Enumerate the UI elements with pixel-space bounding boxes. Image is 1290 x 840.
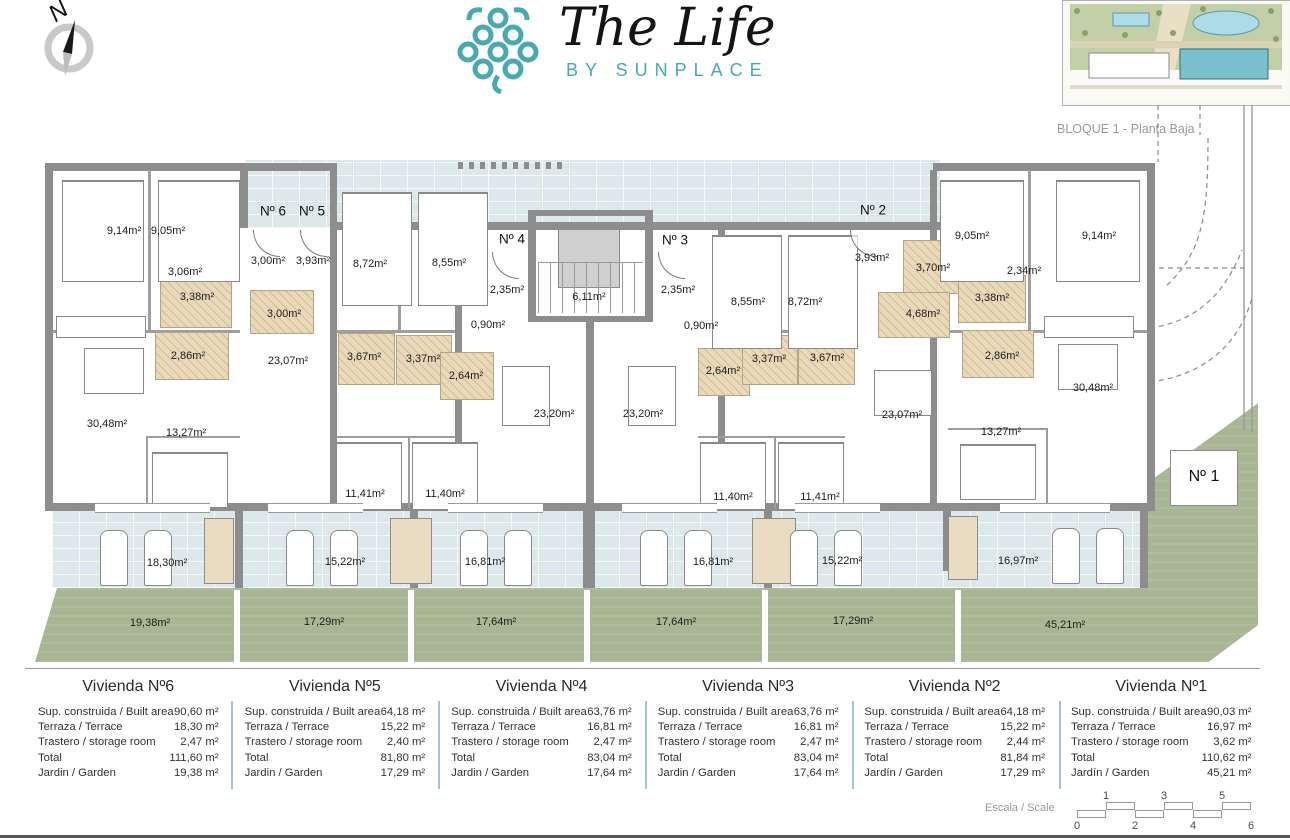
driveway-area bbox=[1148, 100, 1290, 435]
unit-table-5: Vivienda Nº5Sup. construida / Built area… bbox=[232, 676, 439, 792]
unit-spec-row: Trastero / storage room2,40 m² bbox=[245, 735, 426, 750]
unit-spec-row: Trastero / storage room3,62 m² bbox=[1071, 735, 1252, 750]
wall bbox=[45, 163, 53, 511]
unit-spec-row: Total81,84 m² bbox=[864, 751, 1045, 766]
door-swing bbox=[253, 230, 280, 257]
table-divider bbox=[438, 701, 440, 789]
room-area-label: 0,90m² bbox=[471, 319, 505, 331]
spec-label: Sup. construida / Built area bbox=[1071, 705, 1207, 720]
spec-label: Total bbox=[245, 751, 269, 766]
unit-title: Vivienda Nº1 bbox=[1071, 678, 1252, 696]
spec-label: Trastero / storage room bbox=[864, 735, 982, 750]
fence-post bbox=[524, 162, 529, 169]
unit-spec-row: Sup. construida / Built area64,18 m² bbox=[245, 705, 426, 720]
garden-divider bbox=[234, 590, 240, 662]
furniture-kitchen-island bbox=[56, 316, 146, 338]
spec-value: 15,22 m² bbox=[381, 720, 426, 735]
storage-room bbox=[948, 516, 978, 580]
entrance-label: Nº 1 bbox=[1189, 468, 1220, 486]
scale-segment bbox=[1106, 802, 1135, 810]
spec-label: Sup. construida / Built area bbox=[658, 705, 794, 720]
door-swing bbox=[658, 252, 685, 279]
room-area-label: 9,14m² bbox=[107, 225, 141, 237]
wall bbox=[933, 163, 1155, 171]
unit-table-4: Vivienda Nº4Sup. construida / Built area… bbox=[438, 676, 645, 792]
partition-wall bbox=[148, 170, 151, 330]
fence-post bbox=[458, 162, 463, 169]
unit-spec-row: Sup. construida / Built area63,76 m² bbox=[658, 705, 839, 720]
table-divider bbox=[852, 701, 854, 789]
room-area-label: 2,86m² bbox=[171, 350, 205, 362]
spec-label: Sup. construida / Built area bbox=[38, 705, 174, 720]
room-area-label: 9,14m² bbox=[1082, 230, 1116, 242]
spec-value: 90,03 m² bbox=[1207, 705, 1252, 720]
room-area-label: 16,97m² bbox=[998, 555, 1038, 567]
spec-value: 18,30 m² bbox=[174, 720, 219, 735]
spec-label: Sup. construida / Built area bbox=[864, 705, 1000, 720]
room-area-label: 17,64m² bbox=[476, 616, 516, 628]
room-area-label: 0,90m² bbox=[684, 320, 718, 332]
room-area-label: 30,48m² bbox=[87, 418, 127, 430]
staircase bbox=[538, 262, 643, 313]
spec-label: Trastero / storage room bbox=[451, 735, 569, 750]
door-swing bbox=[300, 230, 327, 257]
room-area-label: 9,05m² bbox=[955, 230, 989, 242]
scale-tick: 2 bbox=[1132, 820, 1138, 832]
furniture-bed bbox=[342, 192, 412, 306]
garden-right bbox=[1148, 398, 1258, 662]
entrance-label: Nº 6 bbox=[260, 204, 286, 219]
room-area-label: 3,67m² bbox=[347, 351, 381, 363]
storage-room bbox=[390, 518, 432, 584]
furniture-kitchen-island bbox=[1044, 316, 1134, 338]
page-bottom-rule bbox=[0, 835, 1290, 838]
wall bbox=[1147, 163, 1155, 511]
spec-value: 17,64 m² bbox=[587, 766, 632, 781]
spec-label: Sup. construida / Built area bbox=[245, 705, 381, 720]
entrance-label: Nº 4 bbox=[499, 232, 525, 247]
unit-table-6: Vivienda Nº6Sup. construida / Built area… bbox=[25, 676, 232, 792]
unit-title: Vivienda Nº3 bbox=[658, 678, 839, 696]
spec-label: Trastero / storage room bbox=[245, 735, 363, 750]
spec-value: 90,60 m² bbox=[174, 705, 219, 720]
table-divider bbox=[1059, 701, 1061, 789]
scale-bar: Escala / Scale 1350246 bbox=[985, 790, 1275, 832]
spec-value: 16,97 m² bbox=[1207, 720, 1252, 735]
room-area-label: 8,55m² bbox=[731, 296, 765, 308]
room-area-label: 8,55m² bbox=[432, 257, 466, 269]
spec-label: Jardin / Garden bbox=[658, 766, 736, 781]
wall bbox=[240, 163, 248, 228]
spec-label: Total bbox=[658, 751, 682, 766]
fence-post bbox=[546, 162, 551, 169]
unit-spec-row: Sup. construida / Built area63,76 m² bbox=[451, 705, 632, 720]
garden-divider bbox=[955, 590, 961, 662]
scale-tick: 4 bbox=[1190, 820, 1196, 832]
room-area-label: 18,30m² bbox=[147, 557, 187, 569]
spec-value: 17,64 m² bbox=[794, 766, 839, 781]
room-area-label: 23,07m² bbox=[268, 355, 308, 367]
furniture-bed bbox=[712, 235, 782, 349]
room-area-label: 11,40m² bbox=[713, 491, 753, 503]
room-area-label: 23,20m² bbox=[623, 408, 663, 420]
room-area-label: 16,81m² bbox=[693, 556, 733, 568]
spec-value: 16,81 m² bbox=[794, 720, 839, 735]
storage-room bbox=[204, 518, 234, 584]
unit-spec-row: Trastero / storage room2,47 m² bbox=[38, 735, 219, 750]
spec-label: Jardin / Garden bbox=[451, 766, 529, 781]
room-area-label: 15,22m² bbox=[822, 555, 862, 567]
furniture-bed bbox=[960, 444, 1036, 500]
spec-label: Total bbox=[38, 751, 62, 766]
room-area-label: 3,37m² bbox=[406, 353, 440, 365]
spec-label: Jardin / Garden bbox=[245, 766, 323, 781]
furniture-sun-lounger bbox=[1052, 528, 1080, 584]
spec-label: Terraza / Terrace bbox=[864, 720, 949, 735]
room-area-label: 16,81m² bbox=[465, 556, 505, 568]
unit-spec-row: Trastero / storage room2,44 m² bbox=[864, 735, 1045, 750]
unit-spec-row: Jardín / Garden17,29 m² bbox=[864, 766, 1045, 781]
wall bbox=[45, 163, 337, 171]
spec-label: Terraza / Terrace bbox=[38, 720, 123, 735]
fence-post bbox=[480, 162, 485, 169]
wall bbox=[235, 511, 243, 588]
unit-spec-row: Terraza / Terrace16,97 m² bbox=[1071, 720, 1252, 735]
room-area-label: 13,27m² bbox=[166, 427, 206, 439]
furniture-bed bbox=[788, 235, 858, 349]
unit-table-2: Vivienda Nº2Sup. construida / Built area… bbox=[851, 676, 1058, 792]
bathroom-area bbox=[160, 278, 232, 328]
room-area-label: 2,34m² bbox=[1007, 265, 1041, 277]
spec-value: 17,29 m² bbox=[381, 766, 426, 781]
garden-strip bbox=[35, 588, 1148, 662]
spec-value: 64,18 m² bbox=[1000, 705, 1045, 720]
wall bbox=[645, 210, 653, 322]
spec-label: Terraza / Terrace bbox=[658, 720, 743, 735]
room-area-label: 9,05m² bbox=[151, 225, 185, 237]
unit-spec-row: Sup. construida / Built area64,18 m² bbox=[864, 705, 1045, 720]
unit-spec-row: Terraza / Terrace15,22 m² bbox=[245, 720, 426, 735]
room-area-label: 3,37m² bbox=[752, 353, 786, 365]
window-opening bbox=[268, 503, 363, 513]
unit-spec-row: Jardin / Garden19,38 m² bbox=[38, 766, 219, 781]
unit-spec-row: Terraza / Terrace18,30 m² bbox=[38, 720, 219, 735]
room-area-label: 11,41m² bbox=[345, 488, 385, 500]
room-area-label: 15,22m² bbox=[325, 556, 365, 568]
room-area-label: 3,00m² bbox=[267, 308, 301, 320]
partition-wall bbox=[146, 436, 148, 510]
partition-wall bbox=[408, 436, 410, 508]
scale-segment bbox=[1135, 810, 1164, 818]
room-area-label: 30,48m² bbox=[1073, 382, 1113, 394]
partition-wall bbox=[774, 436, 776, 508]
unit-spec-row: Jardín / Garden45,21 m² bbox=[1071, 766, 1252, 781]
scale-segment bbox=[1193, 810, 1222, 818]
room-area-label: 2,35m² bbox=[490, 284, 524, 296]
room-area-label: 45,21m² bbox=[1045, 619, 1085, 631]
room-area-label: 3,06m² bbox=[168, 266, 202, 278]
spec-value: 16,81 m² bbox=[587, 720, 632, 735]
spec-label: Terraza / Terrace bbox=[245, 720, 330, 735]
wall bbox=[1140, 511, 1148, 588]
scale-tick: 0 bbox=[1074, 820, 1080, 832]
scale-tick: 6 bbox=[1248, 820, 1254, 832]
room-area-label: 23,07m² bbox=[882, 409, 922, 421]
unit-spec-row: Trastero / storage room2,47 m² bbox=[451, 735, 632, 750]
unit-spec-row: Total81,80 m² bbox=[245, 751, 426, 766]
room-area-label: 3,00m² bbox=[251, 255, 285, 267]
spec-label: Terraza / Terrace bbox=[1071, 720, 1156, 735]
spec-value: 19,38 m² bbox=[174, 766, 219, 781]
unit-spec-row: Sup. construida / Built area90,60 m² bbox=[38, 705, 219, 720]
unit-spec-row: Jardin / Garden17,29 m² bbox=[245, 766, 426, 781]
unit-spec-row: Jardin / Garden17,64 m² bbox=[451, 766, 632, 781]
unit-table-3: Vivienda Nº3Sup. construida / Built area… bbox=[645, 676, 852, 792]
partition-wall bbox=[1028, 170, 1031, 330]
spec-label: Jardín / Garden bbox=[864, 766, 943, 781]
spec-value: 63,76 m² bbox=[587, 705, 632, 720]
room-area-label: 2,64m² bbox=[706, 365, 740, 377]
fence-post bbox=[469, 162, 474, 169]
room-area-label: 2,64m² bbox=[449, 370, 483, 382]
furniture-bed bbox=[418, 192, 488, 306]
unit-title: Vivienda Nº4 bbox=[451, 678, 632, 696]
room-area-label: 2,86m² bbox=[985, 350, 1019, 362]
partition-wall bbox=[337, 436, 455, 438]
window-opening bbox=[795, 503, 880, 513]
scale-tick: 5 bbox=[1219, 790, 1225, 802]
furniture-sun-lounger bbox=[790, 530, 818, 586]
unit-spec-row: Trastero / storage room2,47 m² bbox=[658, 735, 839, 750]
spec-label: Terraza / Terrace bbox=[451, 720, 536, 735]
fence-post bbox=[491, 162, 496, 169]
entrance-label: Nº 5 bbox=[299, 204, 325, 219]
entrance-label: Nº 3 bbox=[662, 233, 688, 248]
room-area-label: 8,72m² bbox=[353, 258, 387, 270]
furniture-bed bbox=[152, 452, 228, 508]
scale-tick: 3 bbox=[1161, 790, 1167, 802]
partition-wall bbox=[698, 436, 845, 438]
garden-divider bbox=[762, 590, 768, 662]
spec-label: Total bbox=[1071, 751, 1095, 766]
spec-label: Trastero / storage room bbox=[38, 735, 156, 750]
furniture-sun-lounger bbox=[286, 530, 314, 586]
spec-value: 81,80 m² bbox=[381, 751, 426, 766]
room-area-label: 11,41m² bbox=[800, 491, 840, 503]
spec-value: 2,44 m² bbox=[1007, 735, 1045, 750]
partition-wall bbox=[1046, 428, 1048, 508]
wall bbox=[586, 322, 594, 503]
scale-segment bbox=[1164, 802, 1193, 810]
furniture-dining-table bbox=[84, 348, 144, 394]
spec-value: 3,62 m² bbox=[1213, 735, 1251, 750]
table-divider bbox=[645, 701, 647, 789]
scale-label: Escala / Scale bbox=[985, 802, 1055, 814]
window-opening bbox=[448, 503, 543, 513]
spec-value: 2,47 m² bbox=[593, 735, 631, 750]
room-area-label: 8,72m² bbox=[788, 296, 822, 308]
fence-post bbox=[502, 162, 507, 169]
spec-value: 15,22 m² bbox=[1000, 720, 1045, 735]
unit-spec-row: Total110,62 m² bbox=[1071, 751, 1252, 766]
spec-value: 64,18 m² bbox=[381, 705, 426, 720]
room-area-label: 2,35m² bbox=[661, 284, 695, 296]
room-area-label: 19,38m² bbox=[130, 617, 170, 629]
wall bbox=[528, 210, 653, 216]
spec-label: Total bbox=[864, 751, 888, 766]
window-opening bbox=[1000, 503, 1110, 513]
unit-spec-row: Terraza / Terrace16,81 m² bbox=[451, 720, 632, 735]
room-area-label: 3,67m² bbox=[810, 352, 844, 364]
spec-label: Jardín / Garden bbox=[1071, 766, 1150, 781]
room-area-label: 17,29m² bbox=[833, 615, 873, 627]
garden-divider bbox=[408, 590, 414, 662]
spec-value: 63,76 m² bbox=[794, 705, 839, 720]
window-opening bbox=[622, 503, 717, 513]
furniture-sun-lounger bbox=[1096, 528, 1124, 584]
spec-value: 45,21 m² bbox=[1207, 766, 1252, 781]
door-swing bbox=[492, 252, 519, 279]
fence-post bbox=[557, 162, 562, 169]
furniture-sun-lounger bbox=[100, 530, 128, 586]
unit-table-1: Vivienda Nº1Sup. construida / Built area… bbox=[1058, 676, 1265, 792]
spec-value: 2,40 m² bbox=[387, 735, 425, 750]
spec-value: 17,29 m² bbox=[1000, 766, 1045, 781]
unit-spec-row: Terraza / Terrace16,81 m² bbox=[658, 720, 839, 735]
room-area-label: 3,38m² bbox=[975, 292, 1009, 304]
spec-label: Total bbox=[451, 751, 475, 766]
unit-spec-row: Total111,60 m² bbox=[38, 751, 219, 766]
furniture-sun-lounger bbox=[640, 530, 668, 586]
spec-label: Trastero / storage room bbox=[658, 735, 776, 750]
garden-divider bbox=[584, 590, 590, 662]
spec-label: Jardin / Garden bbox=[38, 766, 116, 781]
wall bbox=[528, 210, 536, 322]
room-area-label: 3,38m² bbox=[180, 291, 214, 303]
unit-spec-row: Terraza / Terrace15,22 m² bbox=[864, 720, 1045, 735]
room-area-label: 13,27m² bbox=[981, 426, 1021, 438]
scale-segment bbox=[1222, 802, 1251, 810]
scale-tick: 1 bbox=[1103, 790, 1109, 802]
spec-value: 2,47 m² bbox=[800, 735, 838, 750]
room-area-label: 23,20m² bbox=[534, 408, 574, 420]
table-divider bbox=[231, 701, 233, 789]
entrance-label: Nº 2 bbox=[860, 203, 886, 218]
unit-title: Vivienda Nº2 bbox=[864, 678, 1045, 696]
wall bbox=[583, 511, 595, 588]
spec-value: 2,47 m² bbox=[180, 735, 218, 750]
room-area-label: 3,93m² bbox=[855, 252, 889, 264]
spec-label: Sup. construida / Built area bbox=[451, 705, 587, 720]
room-area-label: 6,11m² bbox=[572, 291, 605, 303]
unit-title: Vivienda Nº5 bbox=[245, 678, 426, 696]
wall bbox=[528, 316, 653, 322]
unit-spec-row: Jardin / Garden17,64 m² bbox=[658, 766, 839, 781]
spec-value: 83,04 m² bbox=[794, 751, 839, 766]
furniture-sun-lounger bbox=[504, 530, 532, 586]
room-area-label: 17,64m² bbox=[656, 616, 696, 628]
room-area-label: 3,93m² bbox=[296, 255, 330, 267]
unit-spec-row: Sup. construida / Built area90,03 m² bbox=[1071, 705, 1252, 720]
spec-value: 110,62 m² bbox=[1202, 751, 1252, 766]
unit-spec-row: Total83,04 m² bbox=[658, 751, 839, 766]
room-area-label: 4,68m² bbox=[906, 308, 940, 320]
fence-post bbox=[535, 162, 540, 169]
plan-frame-line bbox=[25, 668, 1260, 669]
scale-segment bbox=[1077, 810, 1106, 818]
spec-label: Trastero / storage room bbox=[1071, 735, 1189, 750]
room-area-label: 17,29m² bbox=[304, 616, 344, 628]
window-opening bbox=[95, 503, 210, 513]
spec-value: 81,84 m² bbox=[1000, 751, 1045, 766]
unit-title: Vivienda Nº6 bbox=[38, 678, 219, 696]
spec-value: 111,60 m² bbox=[169, 751, 218, 766]
spec-value: 83,04 m² bbox=[587, 751, 632, 766]
room-area-label: 3,70m² bbox=[916, 262, 950, 274]
room-area-label: 11,40m² bbox=[425, 488, 465, 500]
unit-spec-row: Total83,04 m² bbox=[451, 751, 632, 766]
floorplan-page: { "header": { "compass_label": "N", "log… bbox=[0, 0, 1290, 840]
fence-post bbox=[513, 162, 518, 169]
